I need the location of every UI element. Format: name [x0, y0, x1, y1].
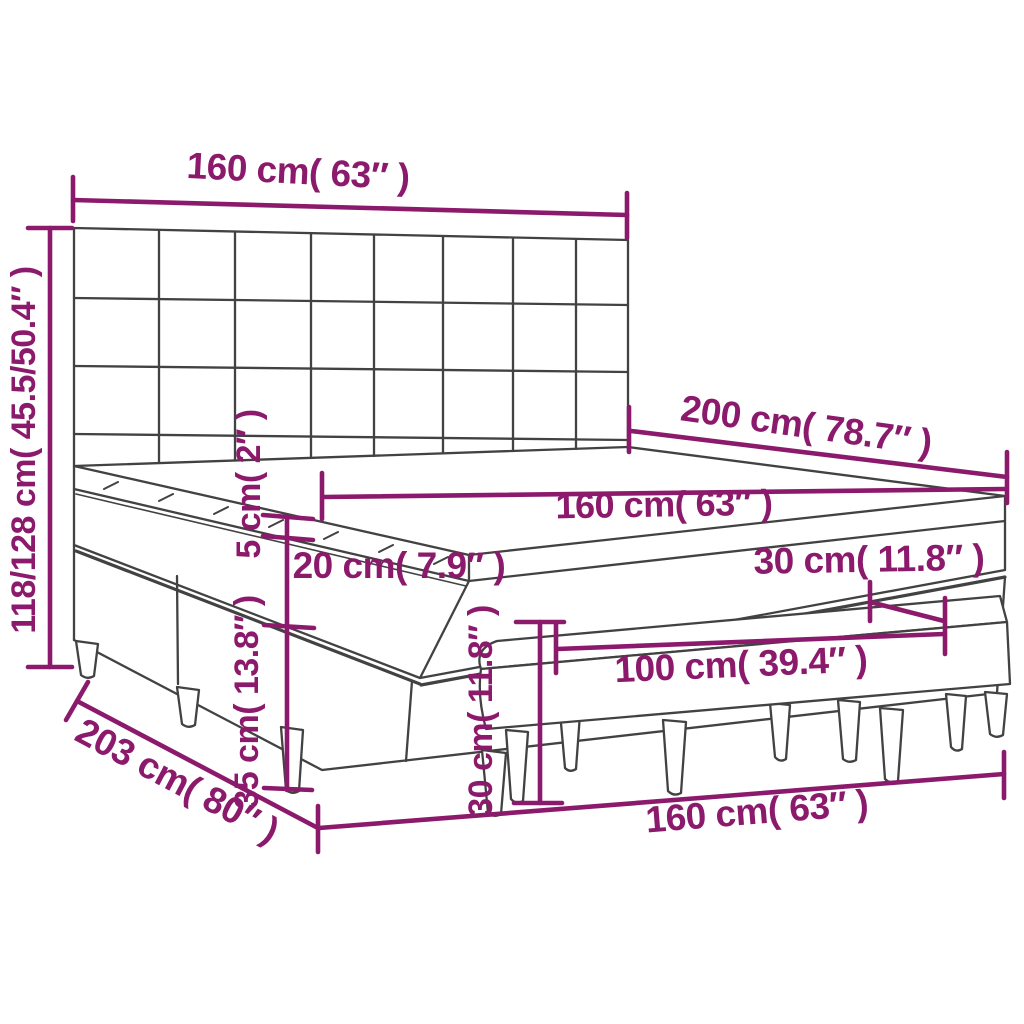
bed-leg [177, 687, 199, 727]
base-seam [177, 576, 178, 684]
bench-leg [770, 703, 790, 761]
headboard-column-lines [159, 230, 576, 463]
dim-tick [264, 625, 314, 628]
dim-mattress-width-label: 160 cm( 63″ ) [555, 482, 773, 527]
base-corner-edge [406, 681, 412, 761]
dim-line [73, 200, 627, 215]
bench [479, 596, 1010, 803]
dim-headboard-width-label: 160 cm( 63″ ) [186, 145, 411, 198]
dim-mattress-thickness-label: 20 cm( 7.9″ ) [293, 545, 506, 586]
diagram-stage: 160 cm( 63″ ) 118/128 cm( 45.5/50.4″ ) 2… [0, 0, 1024, 1024]
dim-base-height-label: 35 cm( 13.8″ ) [228, 595, 266, 808]
dim-tick [66, 682, 88, 720]
dim-total-height: 118/128 cm( 45.5/50.4″ ) [5, 228, 72, 667]
dim-mattress-width: 160 cm( 63″ ) [322, 473, 1005, 526]
bed-leg [281, 727, 303, 793]
dim-tick [264, 788, 312, 790]
dim-bench-depth-label: 30 cm( 11.8″ ) [753, 537, 984, 582]
dim-topper-thickness-label: 5 cm( 2″ ) [230, 409, 268, 558]
bed-leg [985, 692, 1007, 737]
dim-frame-width: 160 cm( 63″ ) [318, 752, 1004, 852]
bench-leg [880, 708, 903, 783]
dim-bench-height-label: 30 cm( 11.8″ ) [462, 605, 500, 817]
headboard-row-lines [74, 298, 628, 440]
bench-leg [946, 694, 966, 751]
bed-leg [838, 700, 860, 762]
dim-headboard-width: 160 cm( 63″ ) [73, 145, 627, 238]
dim-total-height-label: 118/128 cm( 45.5/50.4″ ) [5, 266, 43, 633]
bench-leg [506, 730, 528, 803]
dimension-diagram-canvas: 160 cm( 63″ ) 118/128 cm( 45.5/50.4″ ) 2… [0, 0, 1024, 1024]
bench-leg [663, 720, 686, 795]
dim-tick [263, 515, 313, 519]
bed-leg [76, 641, 98, 678]
